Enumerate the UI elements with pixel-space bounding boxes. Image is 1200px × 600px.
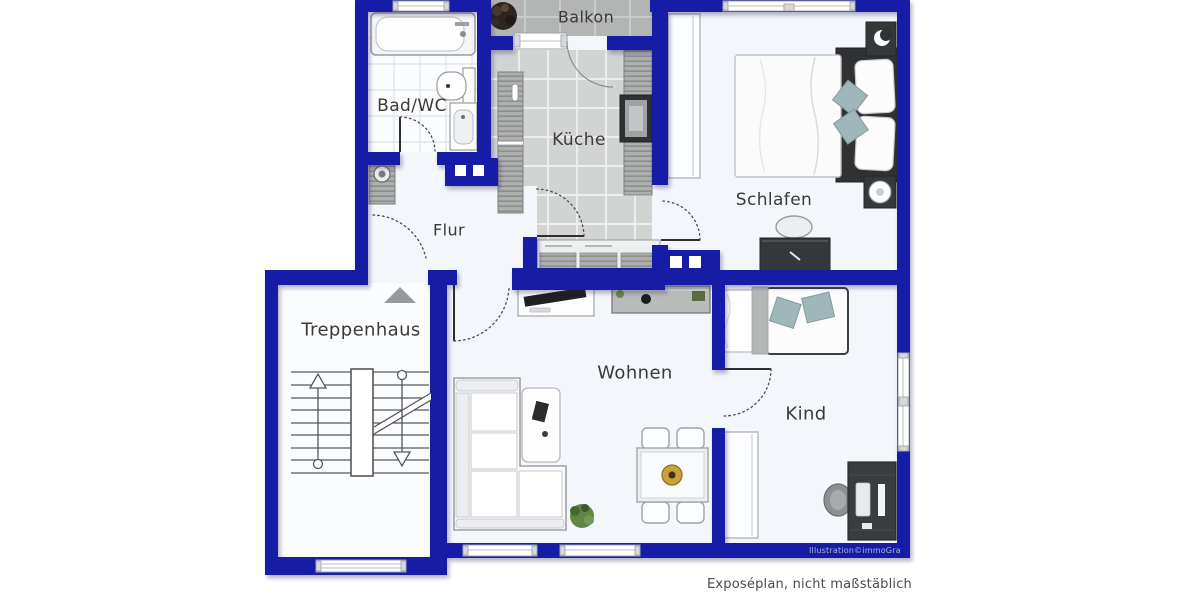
room-label-treppenhaus: Treppenhaus	[301, 320, 420, 341]
living-window-left	[463, 545, 537, 556]
living-window-right	[560, 545, 640, 556]
scale-disclaimer: Exposéplan, nicht maßstäblich	[707, 577, 912, 592]
kids-bed-icon	[722, 287, 848, 354]
nightstand-bottom-icon	[864, 176, 896, 208]
balcony-plant-icon	[489, 2, 517, 30]
room-label-bad: Bad/WC	[377, 96, 447, 116]
room-label-kueche: Küche	[552, 130, 606, 150]
stairwell-window	[316, 560, 406, 572]
bath-window	[393, 1, 449, 11]
washing-machine-icon	[369, 161, 395, 204]
tv-board-icon	[518, 286, 594, 316]
double-bed-icon	[735, 48, 898, 182]
sink-icon	[450, 103, 477, 150]
kitchen-counter-icon	[620, 50, 652, 195]
kids-wardrobe-icon	[722, 432, 758, 538]
room-label-wohnen: Wohnen	[597, 363, 672, 384]
coffee-table-icon	[522, 388, 560, 462]
room-label-kind: Kind	[785, 404, 826, 425]
living-plant-icon	[570, 504, 594, 528]
sideboard-icon	[612, 286, 710, 313]
nightstand-top-icon	[866, 22, 896, 56]
room-label-schlafen: Schlafen	[736, 190, 812, 210]
illustration-credit: Illustration©immoGrafik	[809, 546, 901, 555]
floor-plan-page: Balkon Bad/WC Küche Schlafen Flur Treppe…	[0, 0, 1200, 600]
kitchen-tall-cabinet-icon	[498, 72, 523, 213]
bathtub-icon	[371, 13, 475, 55]
desk-icon	[848, 462, 896, 540]
floor-plan-drawing	[0, 0, 1200, 600]
bedroom-window	[723, 1, 855, 11]
bedroom-wardrobe-icon	[668, 14, 700, 178]
stairs-icon	[291, 369, 431, 476]
kids-window	[898, 353, 909, 451]
room-label-flur: Flur	[433, 221, 465, 240]
room-label-balkon: Balkon	[558, 8, 614, 27]
